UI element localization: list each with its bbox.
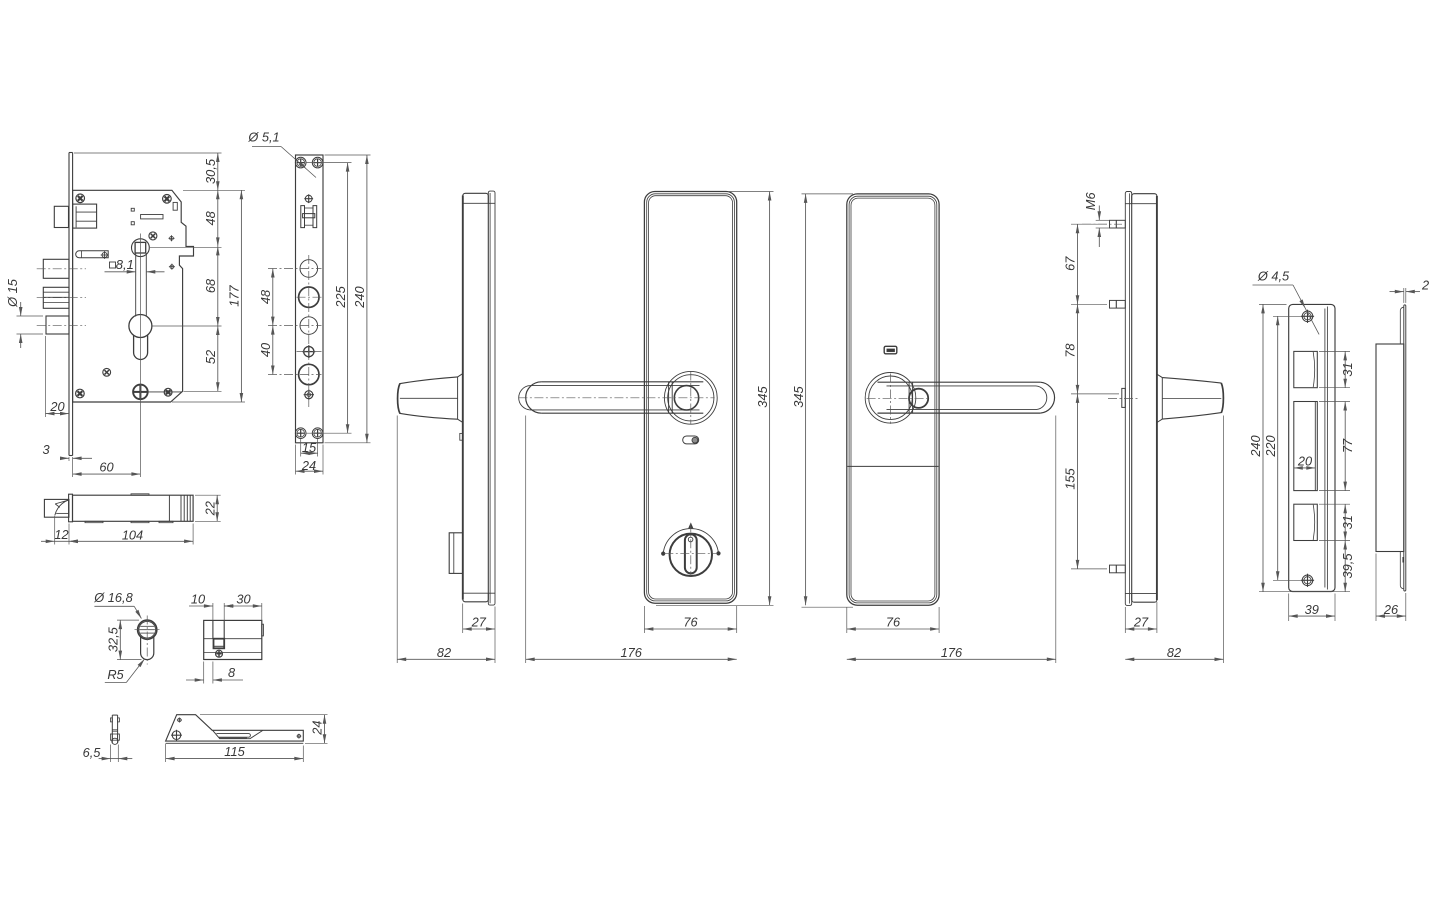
- svg-text:40: 40: [258, 342, 273, 357]
- svg-text:Ø 16,8: Ø 16,8: [93, 590, 133, 605]
- svg-text:M6: M6: [1083, 192, 1098, 211]
- svg-text:176: 176: [621, 645, 643, 660]
- svg-text:20: 20: [1297, 453, 1313, 468]
- svg-text:24: 24: [301, 458, 316, 473]
- svg-text:67: 67: [1063, 256, 1078, 271]
- svg-text:22: 22: [202, 501, 217, 516]
- svg-text:8,1: 8,1: [116, 257, 134, 272]
- svg-text:31: 31: [1340, 515, 1355, 529]
- svg-text:15: 15: [302, 440, 317, 455]
- svg-text:177: 177: [227, 284, 242, 306]
- svg-text:60: 60: [99, 459, 114, 474]
- svg-text:104: 104: [122, 527, 143, 542]
- svg-text:225: 225: [333, 285, 348, 308]
- svg-text:32,5: 32,5: [106, 626, 121, 652]
- svg-text:27: 27: [1133, 615, 1149, 630]
- svg-text:Ø 15: Ø 15: [5, 278, 20, 308]
- svg-text:48: 48: [258, 289, 273, 304]
- svg-text:52: 52: [203, 350, 218, 364]
- svg-text:220: 220: [1263, 434, 1278, 457]
- svg-text:345: 345: [755, 385, 770, 407]
- svg-text:30: 30: [236, 592, 251, 607]
- svg-text:20: 20: [49, 399, 65, 414]
- svg-text:27: 27: [471, 615, 487, 630]
- svg-text:155: 155: [1063, 467, 1078, 489]
- svg-text:240: 240: [352, 286, 367, 309]
- svg-text:3: 3: [42, 442, 49, 457]
- svg-text:77: 77: [1340, 438, 1355, 453]
- svg-text:30,5: 30,5: [203, 158, 218, 184]
- svg-text:12: 12: [54, 527, 68, 542]
- svg-text:76: 76: [886, 615, 901, 630]
- svg-text:Ø 4,5: Ø 4,5: [1257, 269, 1290, 284]
- svg-text:82: 82: [1167, 645, 1181, 660]
- svg-text:82: 82: [437, 645, 451, 660]
- svg-text:R5: R5: [107, 667, 124, 682]
- svg-text:39,5: 39,5: [1340, 553, 1355, 579]
- svg-text:31: 31: [1340, 362, 1355, 376]
- svg-text:Ø 5,1: Ø 5,1: [247, 130, 279, 145]
- svg-text:76: 76: [683, 615, 698, 630]
- svg-text:176: 176: [941, 645, 963, 660]
- svg-text:10: 10: [191, 592, 206, 607]
- svg-text:68: 68: [203, 278, 218, 293]
- svg-text:6,5: 6,5: [83, 745, 102, 760]
- svg-text:115: 115: [224, 744, 245, 759]
- svg-text:345: 345: [791, 385, 806, 407]
- svg-text:2: 2: [1421, 277, 1429, 292]
- svg-text:8: 8: [228, 665, 236, 680]
- svg-text:39: 39: [1305, 602, 1319, 617]
- svg-text:24: 24: [310, 720, 325, 735]
- svg-text:78: 78: [1063, 343, 1078, 358]
- svg-text:48: 48: [203, 210, 218, 225]
- svg-text:240: 240: [1248, 434, 1263, 457]
- svg-text:26: 26: [1383, 602, 1399, 617]
